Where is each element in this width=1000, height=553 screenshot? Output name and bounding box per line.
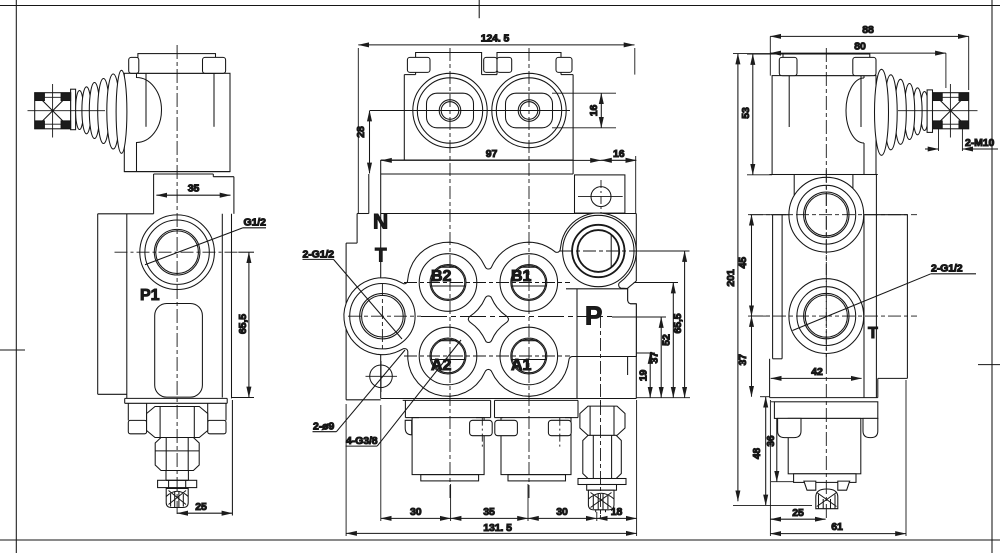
svg-text:45: 45 — [737, 257, 749, 269]
svg-text:48: 48 — [752, 448, 763, 460]
svg-text:T: T — [375, 246, 387, 267]
svg-text:2-M10: 2-M10 — [965, 137, 995, 149]
svg-text:52: 52 — [661, 334, 673, 346]
svg-text:36: 36 — [766, 435, 777, 447]
svg-text:201: 201 — [725, 269, 737, 286]
svg-text:2-ø9: 2-ø9 — [313, 421, 334, 433]
svg-text:124. 5: 124. 5 — [481, 33, 510, 45]
svg-text:A1: A1 — [511, 357, 532, 374]
svg-text:16: 16 — [588, 105, 600, 117]
svg-text:P1: P1 — [140, 287, 160, 304]
svg-text:42: 42 — [811, 366, 823, 378]
svg-text:18: 18 — [611, 506, 623, 518]
svg-text:65,5: 65,5 — [237, 314, 249, 334]
svg-text:80: 80 — [854, 41, 866, 53]
svg-text:N: N — [373, 211, 388, 234]
svg-text:61: 61 — [831, 521, 843, 533]
svg-text:19: 19 — [638, 370, 650, 382]
svg-text:35: 35 — [188, 183, 200, 195]
svg-text:4-G3/8: 4-G3/8 — [346, 435, 378, 447]
svg-text:P: P — [585, 301, 602, 331]
svg-text:30: 30 — [556, 506, 568, 518]
svg-text:2-G1/2: 2-G1/2 — [303, 249, 335, 261]
svg-text:35: 35 — [483, 506, 495, 518]
svg-text:25: 25 — [792, 507, 804, 519]
svg-text:131. 5: 131. 5 — [483, 522, 512, 534]
svg-text:16: 16 — [613, 148, 625, 160]
svg-text:2-G1/2: 2-G1/2 — [931, 263, 963, 275]
svg-text:37: 37 — [737, 354, 749, 366]
svg-text:T: T — [868, 325, 878, 342]
svg-text:30: 30 — [410, 506, 422, 518]
svg-text:28: 28 — [355, 126, 367, 138]
svg-text:88: 88 — [862, 24, 874, 36]
svg-text:G1/2: G1/2 — [244, 217, 267, 229]
svg-text:37: 37 — [649, 352, 661, 364]
svg-text:53: 53 — [740, 107, 752, 119]
svg-text:25: 25 — [195, 501, 207, 513]
svg-text:65,5: 65,5 — [672, 313, 684, 333]
svg-text:97: 97 — [486, 148, 498, 160]
